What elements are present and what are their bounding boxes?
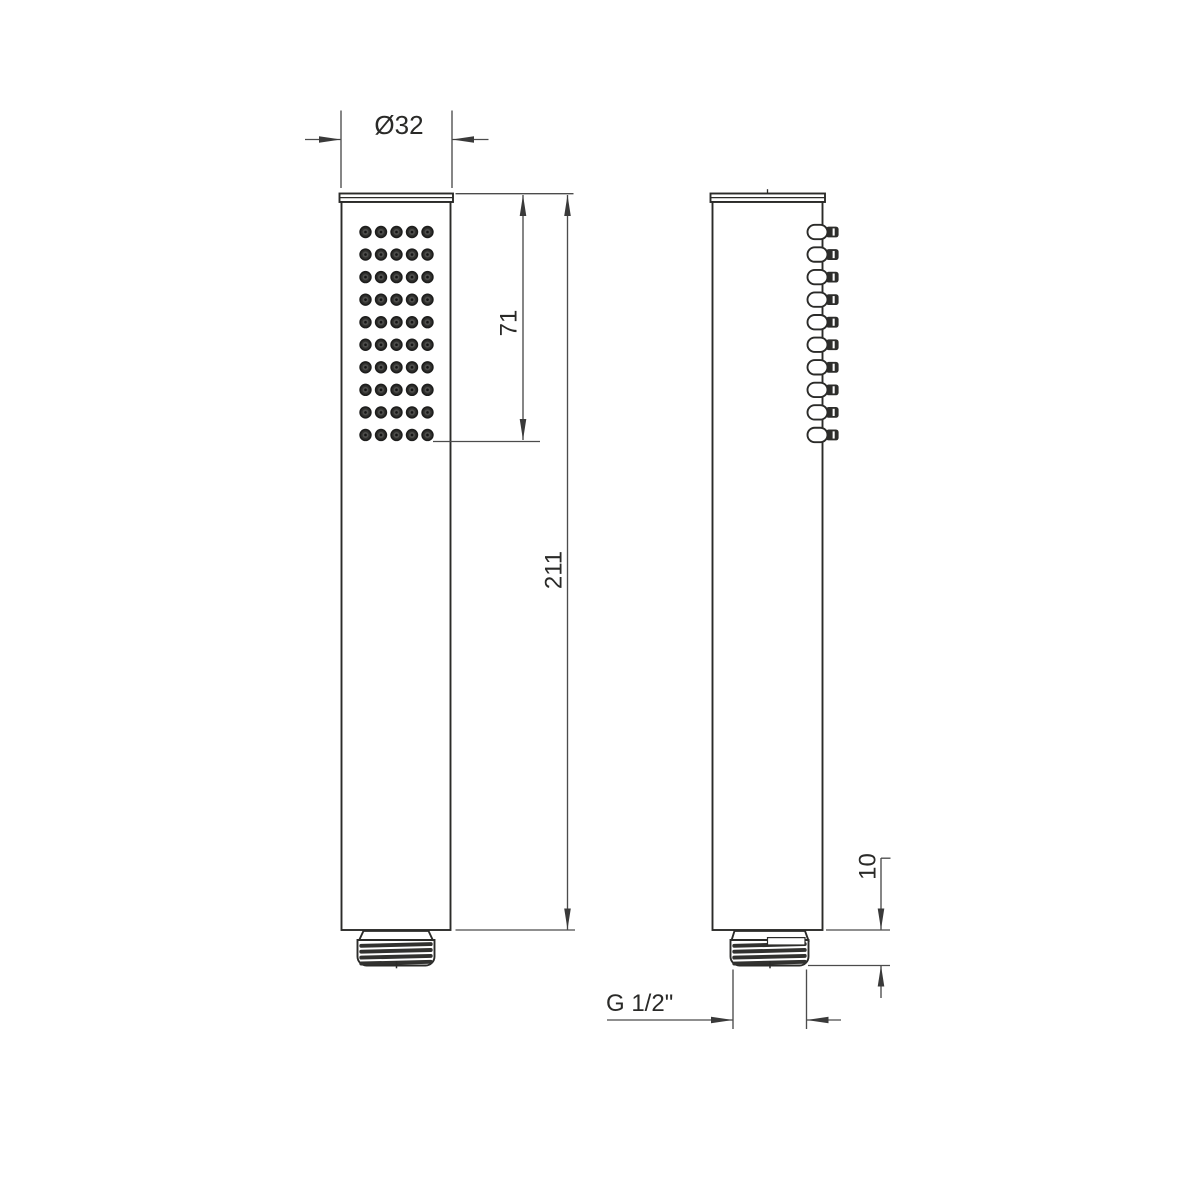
spray-hole	[407, 339, 418, 350]
side-view	[711, 189, 839, 968]
spray-hole	[422, 317, 433, 328]
spray-hole	[376, 227, 387, 238]
spray-hole	[422, 294, 433, 305]
spray-hole	[360, 339, 371, 350]
spray-hole	[376, 317, 387, 328]
spray-hole	[391, 227, 402, 238]
dimension-diameter: Ø32	[305, 110, 489, 188]
spray-hole	[391, 272, 402, 283]
arrowhead-left-icon	[452, 136, 474, 143]
arrowhead-up-icon	[520, 195, 527, 216]
spray-hole	[360, 249, 371, 260]
spray-hole	[391, 294, 402, 305]
spray-hole	[422, 430, 433, 441]
spray-hole	[360, 317, 371, 328]
spray-hole	[376, 362, 387, 373]
spray-hole	[360, 384, 371, 395]
spray-hole	[391, 317, 402, 328]
spray-hole	[360, 362, 371, 373]
spray-hole	[376, 407, 387, 418]
spray-hole	[360, 227, 371, 238]
spray-hole	[376, 384, 387, 395]
side-nozzle	[808, 247, 839, 261]
spray-hole	[391, 384, 402, 395]
overall-length-dimension-label: 211	[541, 551, 568, 589]
spray-hole	[391, 362, 402, 373]
side-nozzle	[808, 292, 839, 306]
side-nozzle	[808, 428, 839, 442]
arrowhead-left-icon	[807, 1017, 829, 1024]
side-nozzle	[808, 270, 839, 284]
side-thread-highlight	[768, 938, 806, 945]
spray-hole	[360, 430, 371, 441]
side-nozzle	[808, 383, 839, 397]
spray-hole	[422, 227, 433, 238]
dimension-thread-spec: G 1/2"	[606, 970, 841, 1030]
spray-hole	[407, 227, 418, 238]
arrowhead-up-icon	[564, 195, 571, 216]
side-nozzle	[808, 338, 839, 352]
spray-hole	[422, 249, 433, 260]
spray-hole	[376, 294, 387, 305]
spray-face-dimension-label: 71	[496, 310, 523, 337]
arrowhead-up-icon	[878, 966, 885, 987]
spray-hole	[407, 430, 418, 441]
arrowhead-down-icon	[564, 909, 571, 930]
spray-hole	[360, 407, 371, 418]
spray-hole	[360, 272, 371, 283]
technical-drawing: Ø32 71 211 10	[0, 0, 1200, 1200]
arrowhead-down-icon	[878, 909, 885, 930]
diameter-dimension-label: Ø32	[374, 110, 423, 140]
spray-hole	[422, 339, 433, 350]
side-nozzle	[808, 405, 839, 419]
spray-hole	[360, 294, 371, 305]
spray-hole	[376, 430, 387, 441]
spray-hole	[391, 407, 402, 418]
spray-hole	[407, 272, 418, 283]
front-body	[342, 202, 451, 930]
side-body	[713, 202, 823, 930]
side-nozzle	[808, 360, 839, 374]
spray-hole	[422, 384, 433, 395]
front-view	[340, 194, 454, 969]
thread-length-dimension-label: 10	[855, 853, 882, 880]
arrowhead-down-icon	[520, 419, 527, 440]
arrowhead-right-icon	[319, 136, 341, 143]
thread-spec-dimension-label: G 1/2"	[606, 990, 673, 1017]
drawing-page: Ø32 71 211 10	[0, 0, 1200, 1200]
spray-hole	[422, 407, 433, 418]
spray-hole	[376, 339, 387, 350]
spray-hole	[422, 272, 433, 283]
front-thread-connector	[358, 931, 435, 968]
spray-hole	[376, 272, 387, 283]
spray-hole	[391, 430, 402, 441]
spray-hole	[407, 384, 418, 395]
side-thread-connector	[731, 931, 809, 968]
spray-hole	[391, 339, 402, 350]
spray-hole	[422, 362, 433, 373]
spray-hole	[407, 407, 418, 418]
spray-hole	[407, 294, 418, 305]
front-thread	[358, 940, 435, 968]
spray-hole	[376, 249, 387, 260]
spray-hole	[407, 362, 418, 373]
dimension-overall-length: 211	[456, 195, 576, 930]
spray-hole	[407, 317, 418, 328]
arrowhead-right-icon	[711, 1017, 733, 1024]
spray-hole	[391, 249, 402, 260]
spray-hole	[407, 249, 418, 260]
side-nozzle	[808, 315, 839, 329]
side-nozzle	[808, 225, 839, 239]
